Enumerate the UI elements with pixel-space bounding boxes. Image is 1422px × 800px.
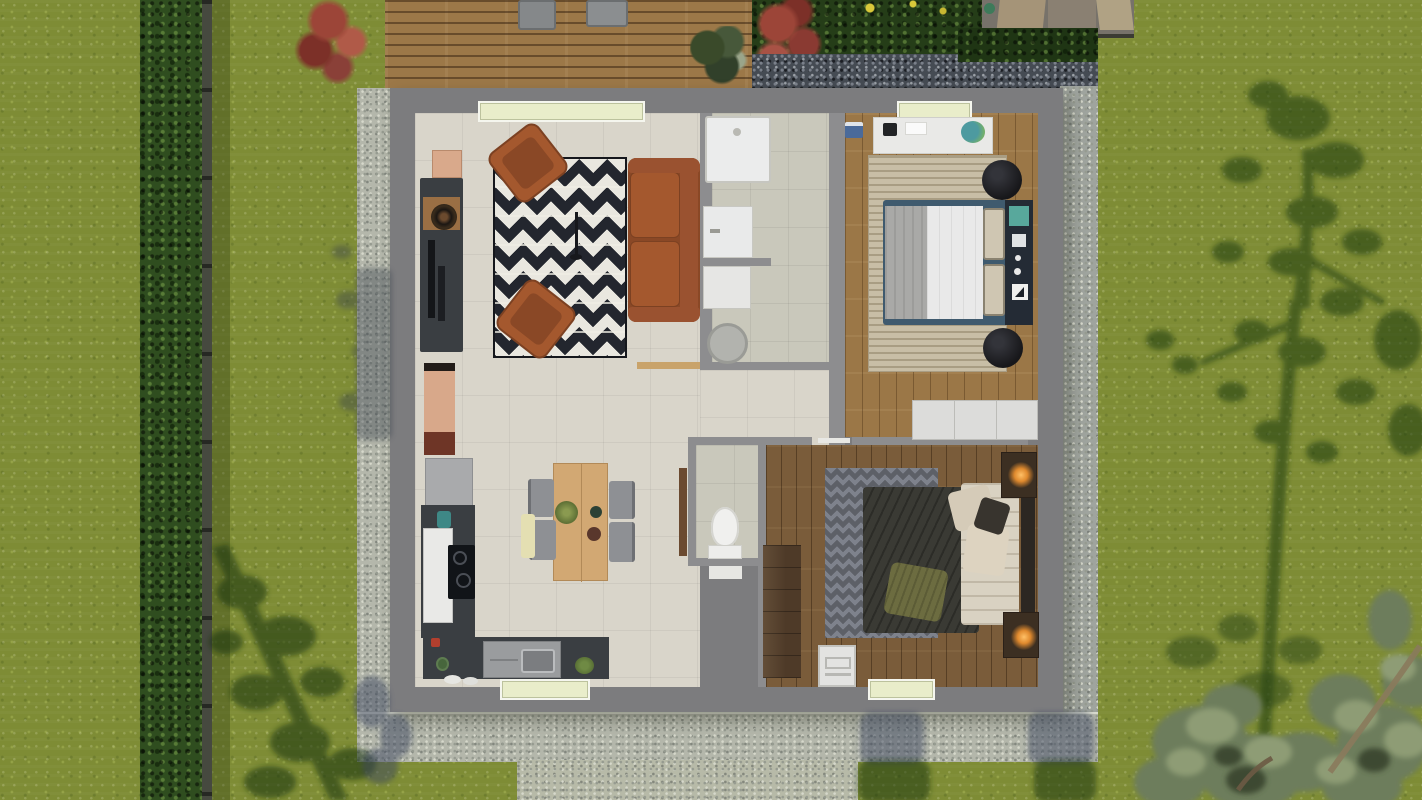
dining-chair: [609, 481, 635, 519]
lamp-glow: [1011, 624, 1037, 650]
gravel-side-strip: [1060, 86, 1098, 712]
laundry-basket: [707, 323, 748, 364]
headboard-dot: [1014, 268, 1021, 275]
toilet-tank: [708, 545, 742, 559]
bed2-pillow-beige: [962, 523, 1010, 576]
sofa-armrest: [628, 158, 700, 173]
house: [390, 88, 1063, 712]
window-living: [478, 101, 645, 122]
shed-hedge: [958, 28, 1098, 62]
table-seam: [581, 464, 582, 582]
record-player: [431, 204, 457, 230]
sofa-cushion: [630, 241, 680, 307]
garden-fence-line: [202, 0, 212, 800]
washing-machine: [703, 266, 751, 309]
platter: [463, 677, 478, 685]
bathroom-partition: [703, 258, 771, 266]
faucet: [710, 229, 720, 233]
step-chair-rung: [825, 657, 851, 669]
nightstand-with-lamp: [1001, 452, 1037, 498]
door-threshold: [637, 362, 700, 369]
shed-roof-panel: [1096, 0, 1134, 30]
hedge-row: [140, 0, 204, 800]
bed-blanket-gray: [885, 206, 927, 319]
concrete-apron: [357, 712, 1098, 762]
sofa: [628, 158, 700, 322]
floor-lamp: [575, 212, 578, 257]
desk-chair: [961, 121, 985, 143]
sink-divider: [490, 659, 518, 661]
green-jar: [436, 657, 449, 671]
kitchen-plant: [575, 657, 594, 674]
round-pouf: [983, 328, 1023, 368]
dining-chair: [528, 479, 554, 517]
headboard-panel: [1005, 200, 1033, 325]
wall-wc-left: [688, 445, 696, 566]
cooktop: [448, 545, 475, 599]
cutting-board: [432, 150, 462, 178]
bed-pillow: [983, 264, 1005, 316]
sink-basin: [521, 649, 555, 673]
table-centerpiece-plant: [555, 501, 578, 524]
bench: [521, 514, 535, 558]
shower-tray: [705, 116, 771, 183]
headboard-dot: [1015, 255, 1021, 261]
sun-lounger: [518, 0, 556, 30]
art-motif: [1015, 287, 1024, 297]
kitchen-upper-cabinet: [425, 458, 473, 506]
floor-lamp-base: [570, 254, 582, 260]
papers: [905, 122, 927, 135]
red-utensil: [431, 638, 440, 647]
dining-chair: [609, 522, 635, 562]
wall-bedroom2-top-left: [688, 437, 812, 445]
laptop: [883, 123, 897, 136]
window-bedroom2: [868, 679, 935, 700]
table-bowl: [587, 527, 601, 541]
step-chair: [818, 645, 856, 687]
sofa-armrest: [628, 307, 700, 322]
bed-pillow: [983, 208, 1005, 260]
bed-duvet-white: [927, 206, 983, 319]
wall-tv-shadow: [438, 266, 445, 321]
burner: [453, 551, 467, 565]
headboard-art: [1012, 234, 1026, 247]
wall-bathroom-right: [829, 113, 845, 445]
burner: [456, 573, 471, 588]
sun-lounger: [586, 0, 628, 27]
bed2-pillow-olive: [883, 561, 949, 622]
floor-cushion: [845, 122, 863, 138]
nightstand-with-lamp: [1003, 612, 1039, 658]
shed-plant: [984, 3, 995, 14]
wall-wc-bottom: [688, 558, 758, 566]
door-swing-mark: [818, 438, 850, 443]
sofa-backrest: [680, 164, 698, 316]
yellow-flowers: [858, 0, 958, 20]
floorplan-render-viewport[interactable]: [0, 0, 1422, 800]
low-dresser: [912, 400, 1038, 440]
washbasin: [703, 206, 753, 258]
hallway-floor: [700, 370, 833, 445]
red-shrub: [288, 0, 378, 84]
bed-bedroom1: [883, 200, 1033, 325]
sofa-cushion: [630, 172, 680, 238]
wardrobe: [763, 545, 801, 678]
armchair-seat: [508, 291, 564, 347]
lamp-glow: [1008, 462, 1034, 488]
hedge-shadow: [212, 0, 230, 800]
wc-door-leaf: [679, 468, 687, 556]
armchair-seat: [500, 135, 556, 191]
kettle: [437, 511, 451, 528]
step-chair-rung: [825, 673, 851, 676]
toilet-bowl: [711, 507, 739, 547]
concrete-strip-left: [357, 88, 390, 712]
wall-tv: [428, 240, 435, 318]
window-kitchen: [500, 679, 590, 700]
toilet-cistern: [709, 566, 742, 579]
shower-drain: [733, 128, 741, 136]
sink-unit: [483, 641, 561, 678]
table-bowl: [590, 506, 602, 518]
deck-plant: [690, 26, 748, 88]
garden-path: [517, 760, 858, 800]
headboard-art: [1012, 284, 1028, 300]
headboard-teal-cushion: [1009, 206, 1029, 226]
sideboard: [424, 363, 455, 455]
round-pouf: [982, 160, 1022, 200]
platter: [444, 675, 461, 684]
